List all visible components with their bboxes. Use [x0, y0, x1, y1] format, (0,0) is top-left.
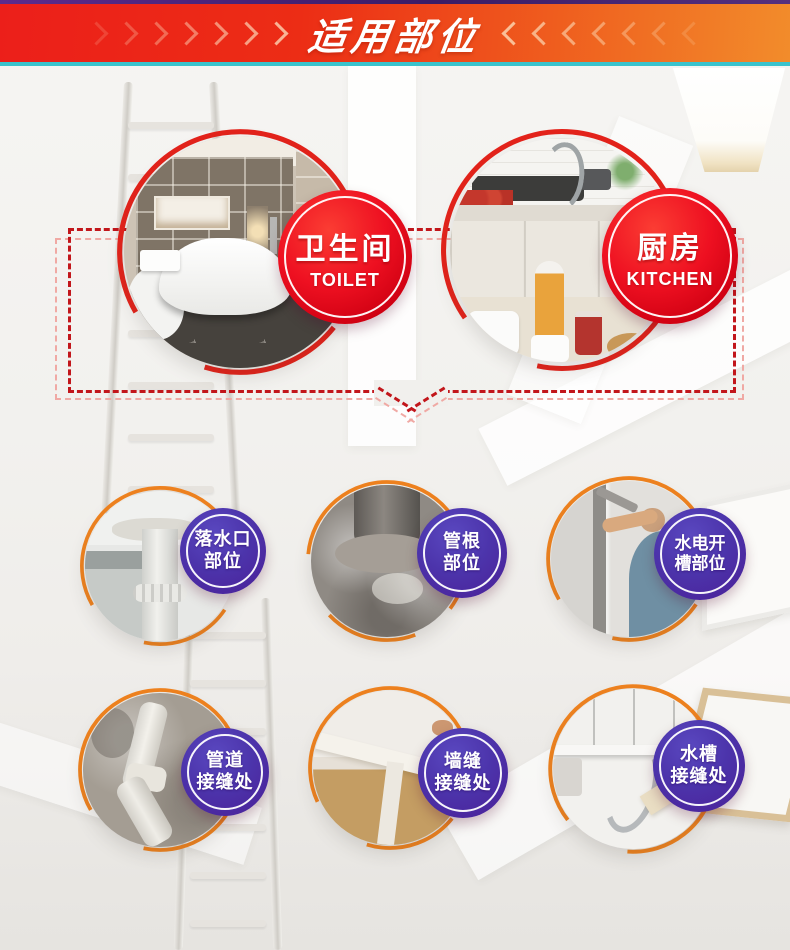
photo-detail — [270, 217, 277, 254]
bathroom-sublabel: TOILET — [310, 270, 380, 291]
chevron-right-icon — [234, 21, 258, 45]
photo-detail — [575, 311, 602, 355]
photo-detail — [372, 573, 424, 603]
photo-detail — [91, 708, 134, 757]
sink-joint-badge: 水槽 接缝处 — [653, 720, 745, 812]
spot-label-line2: 接缝处 — [671, 766, 728, 788]
photo-detail — [154, 196, 230, 230]
promo-page: 适用部位 卫生间 TOILET — [0, 0, 790, 950]
photo-detail — [593, 481, 605, 637]
chevron-left-icon — [681, 21, 705, 45]
kitchen-label: 厨房 — [637, 223, 703, 267]
photo-detail — [553, 758, 582, 796]
ladder-rung — [190, 920, 266, 927]
banner-chevrons-left — [88, 25, 285, 42]
chevron-left-icon — [501, 21, 525, 45]
photo-detail — [114, 773, 176, 847]
ladder-rung — [128, 434, 214, 441]
spot-label-line1: 管根 — [443, 531, 481, 553]
drain-outlet-badge: 落水口 部位 — [180, 508, 266, 594]
chevron-right-icon — [204, 21, 228, 45]
ladder-rung — [190, 872, 266, 879]
spot-label-line1: 水电开 — [675, 534, 726, 554]
photo-detail — [580, 169, 611, 189]
spot-label-line2: 部位 — [204, 551, 242, 573]
spot-label-line1: 水槽 — [680, 744, 718, 766]
bathroom-badge: 卫生间 TOILET — [278, 190, 412, 324]
section-title: 适用部位 — [305, 6, 485, 61]
spot-label-line2: 部位 — [443, 553, 481, 575]
bathroom-label: 卫生间 — [296, 224, 395, 268]
kitchen-sublabel: KITCHEN — [627, 269, 714, 290]
chevron-left-icon — [561, 21, 585, 45]
spot-label-line1: 管道 — [206, 750, 244, 772]
chevron-left-icon — [591, 21, 615, 45]
chevron-right-icon — [114, 21, 138, 45]
photo-detail — [607, 151, 643, 191]
spot-label-line2: 接缝处 — [197, 772, 254, 794]
wall-seam-badge: 墙缝 接缝处 — [418, 728, 508, 818]
chevron-right-icon — [174, 21, 198, 45]
spot-label-line2: 接缝处 — [435, 773, 492, 795]
photo-detail — [607, 333, 656, 360]
chevron-left-icon — [651, 21, 675, 45]
chevron-left-icon — [621, 21, 645, 45]
utility-groove-badge: 水电开 槽部位 — [654, 508, 746, 600]
photo-detail — [140, 250, 179, 271]
chevron-right-icon — [144, 21, 168, 45]
photo-detail — [531, 335, 569, 362]
spot-label-line2: 槽部位 — [675, 554, 726, 574]
kitchen-badge: 厨房 KITCHEN — [602, 188, 738, 324]
photo-detail — [133, 584, 187, 602]
banner-chevrons-right — [505, 25, 702, 42]
section-title-banner: 适用部位 — [0, 4, 790, 62]
spot-label-line1: 落水口 — [195, 529, 252, 551]
chevron-right-icon — [264, 21, 288, 45]
banner-underline — [0, 62, 790, 66]
photo-detail — [535, 261, 564, 339]
spot-label-line1: 墙缝 — [444, 751, 482, 773]
pipe-joint-badge: 管道 接缝处 — [181, 728, 269, 816]
photo-detail — [551, 481, 598, 637]
chevron-right-icon — [84, 21, 108, 45]
chevron-left-icon — [531, 21, 555, 45]
photo-detail — [468, 311, 520, 358]
pipe-root-badge: 管根 部位 — [417, 508, 507, 598]
photo-detail — [377, 761, 404, 845]
